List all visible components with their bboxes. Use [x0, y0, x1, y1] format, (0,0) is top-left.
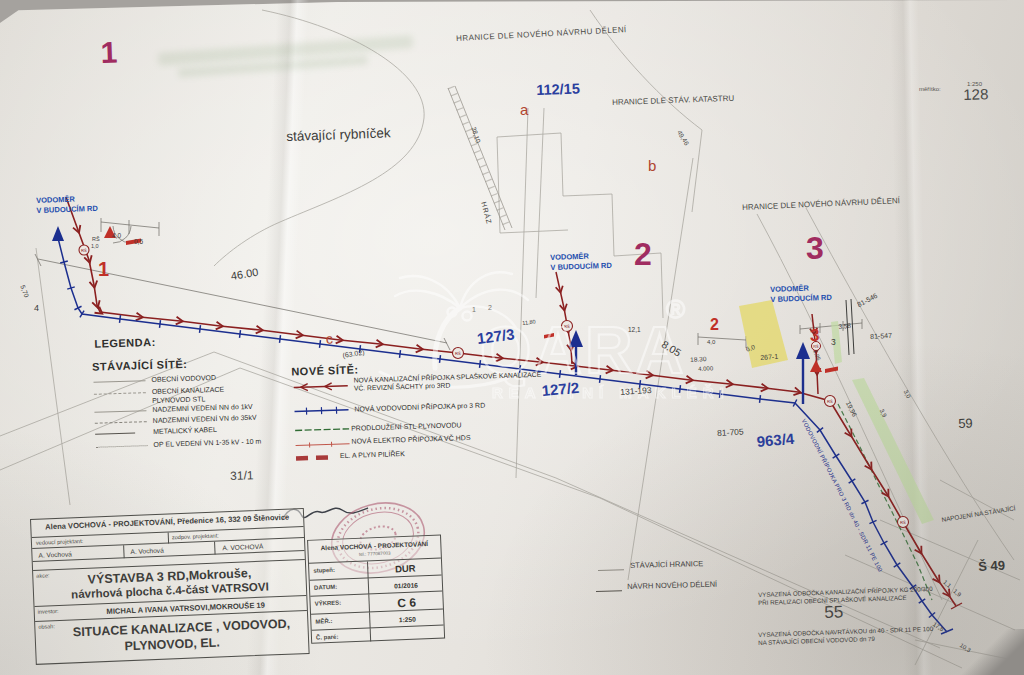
house-number-2: 2 [710, 316, 719, 334]
legend-existing-item: NADZEMNÍ VEDENÍ NN do 1kV [152, 403, 253, 414]
dim-1-1: 1,1 [942, 579, 953, 590]
dim-8-05: 8.05 [660, 338, 684, 359]
legend-sample-vn [95, 421, 147, 424]
legend-sample-op [96, 445, 148, 448]
mini-legend-new-sample [596, 590, 622, 592]
title-block-main-table: Alena VOCHOVÁ - PROJEKTOVÁNÍ, Předenice … [30, 508, 310, 665]
legend-existing-item: OBECNÍ KANALIZACE [152, 386, 225, 396]
dim-38-10: 38,10 [470, 126, 482, 144]
rs-value: 1,0 [91, 243, 99, 249]
designer-name-1: A. Vochová [38, 550, 72, 559]
legend-sample-sewer-existing [94, 392, 146, 395]
parcel-55: 55 [824, 602, 844, 622]
content-label: obsah: [38, 623, 55, 630]
parcel-81-546: 81-546 [856, 292, 879, 309]
scale-label: měřítko: [919, 86, 941, 93]
legend-sample-cable [95, 433, 135, 435]
lot-number-1: 1 [472, 306, 476, 314]
dim-46-00: 46.00 [230, 266, 259, 283]
legend-existing-item: OBECNÍ VODOVOD [151, 374, 216, 384]
house-number-3: 3 [810, 326, 819, 346]
lead-designer-label: vedoucí projektant: [36, 538, 83, 546]
copy-number-label: Č. paré: [316, 634, 339, 641]
legend-sample-new-sewer [292, 381, 350, 393]
dim-4-0-middle: 4,0 [707, 339, 715, 346]
stage-label: stupeň: [313, 567, 335, 574]
parcel-81-547: 81-547 [870, 332, 892, 341]
legend-sample-new-electric [293, 440, 351, 450]
designer-name-2: A. Vochová [130, 547, 164, 556]
house-number-1: 1 [98, 258, 109, 281]
scale-field-value: 1:250 [373, 615, 441, 625]
dim-3-0: 3,0 [902, 389, 912, 400]
title-block: Alena VOCHOVÁ - PROJEKTOVÁNÍ, Předenice … [30, 502, 456, 669]
dim-0-5: 0,5 [134, 238, 143, 245]
designer-name-3: A. VOCHOVÁ [222, 543, 263, 552]
drawing-number-label: VÝKRES: [315, 600, 342, 607]
legend-new-item: NOVÁ ELEKTRO PŘÍPOJKA VČ HDS [351, 434, 470, 446]
water-meter-line2: V BUDOUCÍM RD [770, 293, 832, 304]
point-number-3: 3 [831, 338, 836, 348]
dim-3-9: 3,9 [878, 408, 888, 419]
parcel-59: 59 [958, 416, 973, 431]
water-meter-line2: V BUDOUCÍM RD [36, 204, 98, 215]
boundary-new-right-label: HRANICE DLE NOVÉHO NÁVRHU DĚLENÍ [742, 196, 900, 212]
table-surface-corner [954, 629, 1024, 675]
investor-label: investor: [38, 608, 59, 615]
date-label: DATUM: [314, 584, 337, 591]
dim-4-000: 4.000 [698, 365, 713, 373]
area-number-1: 1 [100, 35, 118, 70]
water-meter-label-left: VODOMĚR V BUDOUCÍM RD [36, 194, 98, 216]
legend-title: LEGENDA: [94, 336, 156, 351]
water-meter-line1: VODOMĚR [770, 284, 809, 294]
stage-value: DUR [371, 562, 439, 576]
legend-sample-pillar [294, 453, 334, 462]
dim-18-30: 18.30 [690, 355, 707, 363]
water-meter-line2: V BUDOUCÍM RD [550, 261, 612, 272]
parcel-128: 128 [963, 85, 989, 103]
boundary-new-top-label: HRANICE DLE NOVÉHO NÁVRHU DĚLENÍ [456, 25, 627, 43]
dim-6-0: 6,0 [745, 343, 756, 353]
legend-sample-new-water [292, 405, 350, 417]
dim-4-corner: 4 [34, 303, 39, 313]
lot-number-2: 2 [488, 304, 492, 312]
parcel-s-49: Š 49 [978, 559, 1005, 575]
legend-new-item: VČ. REVIZNÍ ŠACHTY pro 3RD [354, 382, 451, 393]
legend-new-title: NOVÉ SÍTĚ: [291, 363, 359, 378]
legend-existing-item: NADZEMNÍ VEDENÍ VN do 35kV [153, 414, 257, 425]
water-meter-line1: VODOMĚR [36, 195, 75, 205]
title-block-info-table: Alena VOCHOVÁ - PROJEKTOVÁNÍ tel.: 77708… [307, 535, 445, 644]
point-b: b [648, 157, 656, 174]
legend-existing-item: METALICKÝ KABEL [153, 426, 217, 436]
mini-legend-new-label: NÁVRH NOVÉHO DĚLENÍ [627, 581, 717, 592]
mini-legend-existing-sample [598, 569, 624, 571]
dim-5-70: 5,70 [19, 284, 30, 298]
water-meter-label-middle: VODOMĚR V BUDOUCÍM RD [550, 251, 612, 273]
parcel-81-705: 81-705 [717, 428, 744, 439]
water-meter-label-right: VODOMĚR V BUDOUCÍM RD [770, 283, 832, 305]
legend-existing-title: STÁVAJÍCÍ SÍTĚ: [92, 358, 188, 374]
legend-sample-water-existing [94, 380, 146, 383]
parcel-963-4: 963/4 [756, 430, 795, 450]
area-number-2: 2 [634, 236, 652, 273]
water-meter-line1: VODOMĚR [550, 252, 589, 262]
dim-49-46: 49,46 [676, 129, 691, 147]
dim-19-96: 19,96 [844, 400, 858, 418]
area-number-3: 3 [806, 230, 824, 267]
parcel-131-193: 131-193 [620, 386, 652, 398]
dim-4-0-left: 4,0 [112, 232, 121, 239]
dim-17-8: 17,8 [931, 621, 945, 633]
dim-1-9: 1,9 [952, 588, 963, 599]
connection-note: NAPOJENÍ NA STÁVAJÍCÍ [941, 504, 1016, 523]
scale-field-label: MĚŘ.: [315, 618, 332, 625]
legend: LEGENDA: STÁVAJÍCÍ SÍTĚ: OBECNÍ VODOVOD … [86, 318, 600, 479]
photographed-site-plan: RŠ RŠ RŠ RŠ RŠ RŠ [0, 0, 1024, 675]
dim-12-1: 12,1 [628, 326, 641, 333]
rs-label: RŠ [92, 236, 100, 242]
resp-designer-label: zodpov. projektant: [172, 532, 219, 540]
water-branch-pipe-label: VODOVODNÍ PŘÍPOJKA PRO 3 RD dn 40 - SDR … [800, 418, 883, 573]
dim-1-96: 1,96 [812, 349, 822, 361]
dim-3-58: 3,58 [838, 322, 851, 331]
legend-new-item: EL. A PLYN PILÍŘEK [340, 450, 405, 460]
dim-267-1: 267-1 [760, 353, 778, 362]
legend-sample-nn [94, 410, 146, 413]
legend-sample-gas-ext [293, 425, 351, 435]
boundary-cadastre-label: HRANICE DLE STÁV. KATASTRU [612, 94, 734, 107]
legend-existing-item: OP EL VEDENÍ VN 1-35 kV - 10 m [153, 438, 261, 449]
point-a: a [520, 101, 528, 118]
date-value: 01/2016 [372, 581, 440, 591]
dam-label: HRÁZ [479, 201, 493, 225]
mini-legend-existing-label: STÁVAJÍCÍ HRANICE [630, 560, 703, 571]
legend-new-item: NOVÁ VODOVODNÍ PŘÍPOJKA pro 3 RD [354, 401, 485, 413]
pond-label: stávající rybníček [286, 125, 391, 144]
legend-new-item: PRODLOUŽENÍ STL PLYNOVODU [351, 421, 462, 433]
parcel-112-15: 112/15 [536, 80, 580, 98]
